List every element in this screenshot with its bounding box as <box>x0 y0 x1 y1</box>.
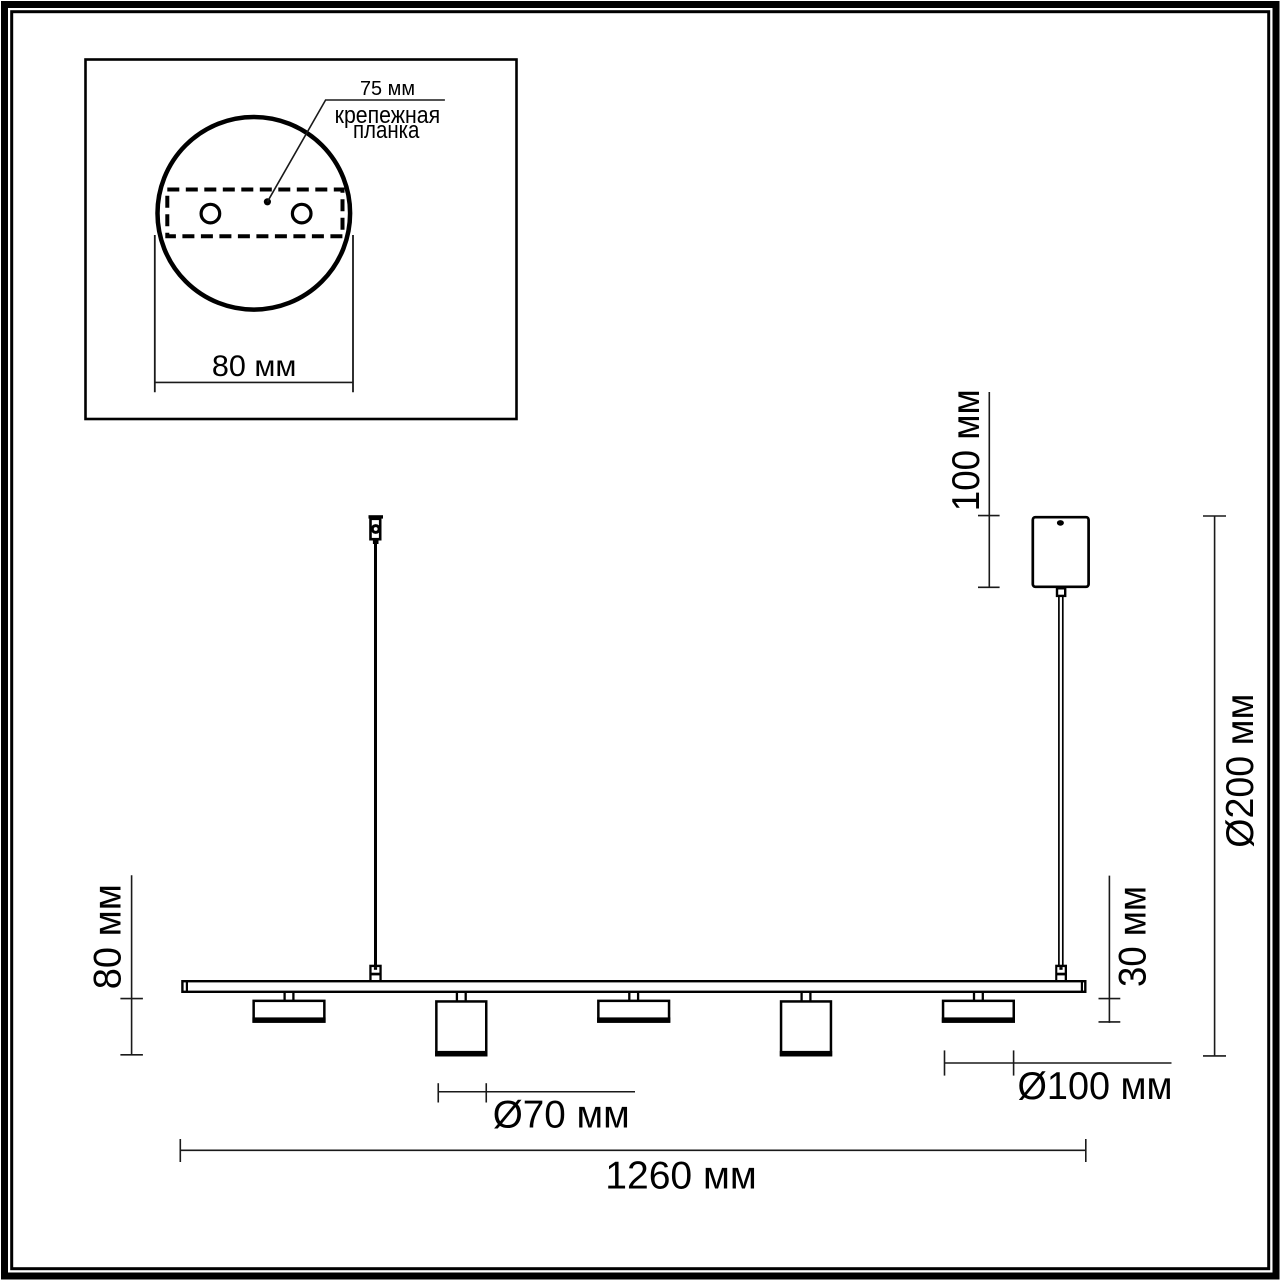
svg-text:Ø70 мм: Ø70 мм <box>493 1094 630 1137</box>
svg-text:Ø100 мм: Ø100 мм <box>1018 1065 1173 1108</box>
svg-text:75 мм: 75 мм <box>360 77 415 100</box>
svg-text:планка: планка <box>353 117 420 144</box>
svg-text:30 мм: 30 мм <box>1111 886 1154 987</box>
svg-text:Ø200 мм: Ø200 мм <box>1219 694 1262 848</box>
svg-text:80 мм: 80 мм <box>87 884 130 989</box>
svg-text:1260 мм: 1260 мм <box>605 1154 757 1197</box>
svg-text:100 мм: 100 мм <box>945 389 988 511</box>
svg-text:80 мм: 80 мм <box>212 350 297 383</box>
